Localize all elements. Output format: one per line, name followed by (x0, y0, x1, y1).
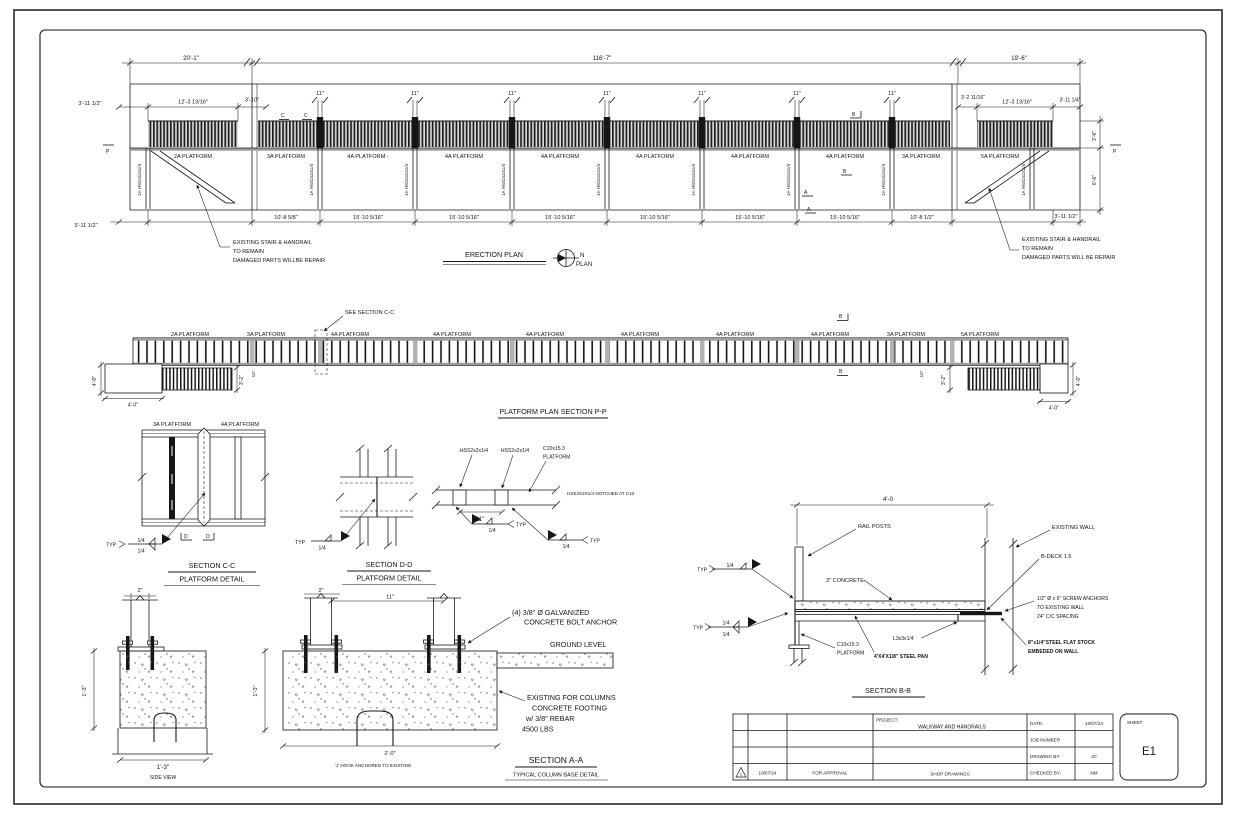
l3-label: L3x3x1/4 (893, 636, 914, 642)
project-label: PROJECT: (876, 718, 898, 723)
steel-pan-label: 4'X4'X1/8" STEEL PAN (874, 654, 928, 660)
note-line: EXISTING STAIR & HANDRAIL (1022, 237, 1101, 243)
drawing-by-value: JC (1091, 754, 1097, 759)
dim: 3'-11 1/2" (74, 223, 97, 229)
weld-size: 1/4 (137, 538, 144, 544)
anchor-note: TO EXISTING WALL (1037, 605, 1084, 611)
job-number-label: JOB NUMBER (1030, 738, 1061, 743)
north-label: N (580, 252, 584, 259)
note-line: DAMAGED PARTS WILLBE REPAIR (233, 258, 325, 264)
dim: 10'-8 5/8" (274, 215, 298, 221)
weld-size: 1/4 (726, 563, 733, 569)
weld-size: 1/4 (722, 632, 729, 638)
platform-label: 2A PLATFORM (171, 332, 209, 338)
view-title: SIDE VIEW (150, 775, 177, 781)
platform-label: 4A PLATFORM - (347, 154, 389, 160)
view-title: SECTION A-A (529, 755, 584, 765)
footing-note: w/ 3/8" REBAR (525, 714, 575, 723)
dim-19-6: 19'-6" (1011, 55, 1027, 62)
dim: 3'-11 1/2" (1054, 214, 1077, 220)
weld-size: 1/4 (722, 621, 729, 627)
c10-label2: PLATFORM (543, 455, 570, 461)
view-title: SECTION D-D (366, 560, 413, 569)
marker-B: B (839, 314, 843, 320)
platform-label: 4A PLATFORM (716, 332, 754, 338)
sheet-label: SHEET: (1127, 720, 1143, 725)
footing-note: CONCRETE FOOTING (532, 704, 607, 713)
column-label: 1A HSS2x2x1/4 (596, 163, 601, 196)
marker-D: D (184, 534, 188, 540)
dim-11: 11" (411, 91, 419, 97)
platform-label: 5A PLATFORM (961, 332, 999, 338)
platform-label: 4A PLATFORM (636, 154, 674, 160)
platform-label: 4A PLATFORM (445, 154, 483, 160)
sheet-number: E1 (1142, 746, 1156, 758)
dim-10: 10" (919, 370, 924, 377)
north-sublabel: PLAN (576, 261, 592, 268)
weld-size: 1/4 (562, 544, 569, 550)
dim-2: 2" (318, 588, 323, 594)
weld-size: 1/4 (318, 546, 325, 552)
rail-posts-label: RAIL POSTS (858, 524, 891, 530)
marker-C: C (304, 113, 308, 119)
view-title: SECTION B-B (865, 686, 911, 695)
dim: 15'-10 5/16" (545, 215, 575, 221)
platform-label: 4A PLATFORM (731, 154, 769, 160)
footing-note: EXISTING FOR COLUMNS (527, 693, 616, 702)
platform-label: 2A PLATFORM (174, 154, 212, 160)
checked-by-value: NM (1090, 771, 1097, 776)
jhook-note: 'J' HOOK ANCHORED TO EXISTING (335, 763, 412, 768)
marker-B: B (843, 169, 847, 175)
marker-D: D (206, 534, 210, 540)
column-label: 1A HSS2x2x1/4 (881, 163, 886, 196)
dim: 15'-10 5/16" (830, 215, 860, 221)
dim-3-2-11: 3'-2 11/16" (961, 95, 985, 101)
revision-date: 10/07/24 (759, 771, 777, 776)
platform-label: 3A PLATFORM (267, 154, 305, 160)
shop-drawing-sheet: 20'-1" 116'-7" 19'-6" 3'-11 1/2" 12'-3 1… (0, 0, 1236, 815)
note-line: TO REMAIN (233, 249, 264, 255)
dim: 15'-10 5/16" (353, 215, 383, 221)
c10-label2: PLATFORM (837, 651, 864, 657)
dim: 15'-10 5/16" (449, 215, 479, 221)
dim-11: 11" (698, 91, 706, 97)
dim-2-0: 2'-0" (384, 751, 395, 757)
dim-3-6: 3'-6" (1092, 131, 1098, 141)
anchor-note: 24" C/C SPACING (1037, 614, 1079, 620)
galvanized-note: CONCRETE BOLT ANCHOR (524, 618, 617, 627)
hss-label: HSS2x2x1/4 (501, 448, 529, 454)
flat-stock-note: 8"x1/4"STEEL FLAT STOCK (1028, 640, 1095, 646)
drawing-by-label: DRAWING BY: (1030, 754, 1060, 759)
flat-stock-note: EMBEDED ON WALL (1028, 649, 1078, 655)
dim-12-3: 12'-3 13/16" (178, 100, 208, 106)
note-line: EXISTING STAIR & HANDRAIL (233, 240, 312, 246)
dim-2: 2" (137, 588, 142, 594)
dim-11: 11" (316, 91, 324, 97)
dim-3-11-half: 3'-11 1/2" (78, 101, 101, 107)
column-label: 1A HSS2x2x1/4 (137, 163, 142, 196)
dim: 15'-10 5/16" (640, 215, 670, 221)
c10-label: C10x15.3 (837, 642, 859, 648)
platform-label: 4A PLATFORM (331, 332, 369, 338)
view-subtitle: PLATFORM DETAIL (356, 574, 421, 583)
dim-4-0: 4'-0" (1049, 406, 1059, 412)
marker-A: A (804, 190, 808, 196)
platform-label: 4A PLATFORM (433, 332, 471, 338)
weld-typ: TYP (295, 540, 306, 546)
platform-label: 3A PLATFORM (153, 422, 191, 428)
dim-116-7: 116'-7" (593, 55, 612, 62)
dim-3-2: 3'-2" (941, 375, 947, 385)
handrail-band (148, 121, 1053, 147)
dim: 15'-10 5/16" (735, 215, 765, 221)
dim-1-3: 1'-3" (253, 685, 259, 696)
platform-label: 4A PLATFORM (826, 154, 864, 160)
revision-description: FOR APPROVAL (812, 771, 848, 776)
dim-11: 11" (793, 91, 801, 97)
view-title: ERECTION PLAN (465, 250, 523, 259)
dim: 10'-8 1/2" (910, 215, 934, 221)
platform-label: 3A PLATFORM (887, 332, 925, 338)
existing-wall-label: EXISTING WALL (1052, 525, 1095, 531)
dim-20-1: 20'-1" (183, 55, 199, 62)
c10-label: C10x15.3 (543, 446, 565, 452)
column-label: 1A HSS2x2x1/4 (309, 163, 314, 196)
column-label: 1A HSS2x2x1/4 (691, 163, 696, 196)
anchor-note: 1/2" Ø x 6" SCREW ANCHORS (1037, 596, 1109, 602)
dim-6-6: 6'-6" (1092, 175, 1098, 185)
note-line: TO REMAIN (1022, 246, 1053, 252)
note-line: DAMAGED PARTS WILL BE REPAIR (1022, 255, 1115, 261)
footing-note: 4500 LBS (522, 725, 554, 734)
view-title: PLATFORM PLAN SECTION P-P (499, 407, 607, 416)
platform-label: 4A PLATFORM (621, 332, 659, 338)
sheet-number-box: SHEET: E1 (1120, 714, 1178, 780)
platform-label: 3A PLATFORM (902, 154, 940, 160)
dim-11: 11" (603, 91, 611, 97)
weld-typ: TYP (590, 539, 601, 545)
marker-P: P (106, 149, 110, 155)
weld-typ: TYP (516, 523, 527, 529)
title-block: PROJECT: WALKWAY AND HANDRAILS DATE: 10/… (733, 714, 1178, 780)
marker-B: B (852, 112, 856, 118)
platform-label: 3A PLATFORM (247, 332, 285, 338)
platform-label: 4A PLATFORM (811, 332, 849, 338)
platform-label: 5A PLATFORM (981, 154, 1019, 160)
marker-B: B (839, 369, 843, 375)
marker-P: P (1113, 149, 1117, 155)
dim-3-10: 3'-10" (245, 98, 259, 104)
weld-size: 1/4 (137, 549, 144, 555)
view-subtitle: TYPICAL COLUMN BASE DETAIL (513, 773, 599, 779)
see-section-label: SEE SECTION C-C (345, 310, 394, 316)
dim-11: 11" (508, 91, 516, 97)
platform-label: 4A PLATFORM (221, 422, 259, 428)
dim-4-0: 4'-0" (1076, 376, 1082, 386)
notch-note: HSS2X2X1/4 NOTCHED AT C10 (567, 491, 635, 496)
dim-11: 11" (888, 91, 896, 97)
marker-A: A (807, 207, 811, 213)
column-label: 1A HSS2x2x1/4 (404, 163, 409, 196)
view-subtitle: PLATFORM DETAIL (179, 575, 244, 584)
dim-11: 11" (386, 595, 394, 601)
weld-size: 1/4 (488, 528, 495, 534)
weld-typ: TYP (693, 626, 704, 632)
dim-4-0: 4'-0" (92, 376, 98, 386)
platform-label: 4A PLATFORM (526, 332, 564, 338)
dim-12-3-r: 12'-3 13/16" (1002, 100, 1032, 106)
dim-4-0: 4'-0 (883, 496, 894, 503)
galvanized-note: (4) 3/8" Ø GALVANIZED (512, 608, 589, 617)
date-value: 10/07/24 (1085, 721, 1103, 726)
weld-typ: TYP (697, 568, 708, 574)
bdeck-label: B-DECK 1.5 (1041, 554, 1071, 560)
date-label: DATE: (1030, 721, 1043, 726)
dim-1-3: 1'-3" (82, 685, 88, 696)
dim-3-2: 3'-2" (239, 375, 245, 385)
ground-level-label: GROUND LEVEL (550, 640, 606, 649)
dim-1-3: 1'-3" (157, 764, 169, 771)
dim-10: 10" (251, 370, 256, 377)
dim-4-0: 4'-0" (128, 403, 138, 409)
column-label: 1A HSS2x2x1/4 (501, 163, 506, 196)
project-name: WALKWAY AND HANDRAILS (918, 725, 986, 731)
marker-C: C (281, 113, 285, 119)
view-title: SECTION C-C (189, 561, 236, 570)
column-label: 1A HSS2x2x1/4 (786, 163, 791, 196)
hss-label: HSS2x2x1/4 (460, 448, 488, 454)
platform-label: 4A PLATFORM (541, 154, 579, 160)
weld-typ: TYP (106, 543, 117, 549)
dim-3-11-quarter: 3'-11 1/4" (1059, 98, 1080, 104)
concrete-label: 3" CONCRETE (826, 578, 864, 584)
checked-by-label: CHECKED BY: (1030, 771, 1061, 776)
drawing-type: SHOP DRAWINGS (930, 772, 969, 777)
